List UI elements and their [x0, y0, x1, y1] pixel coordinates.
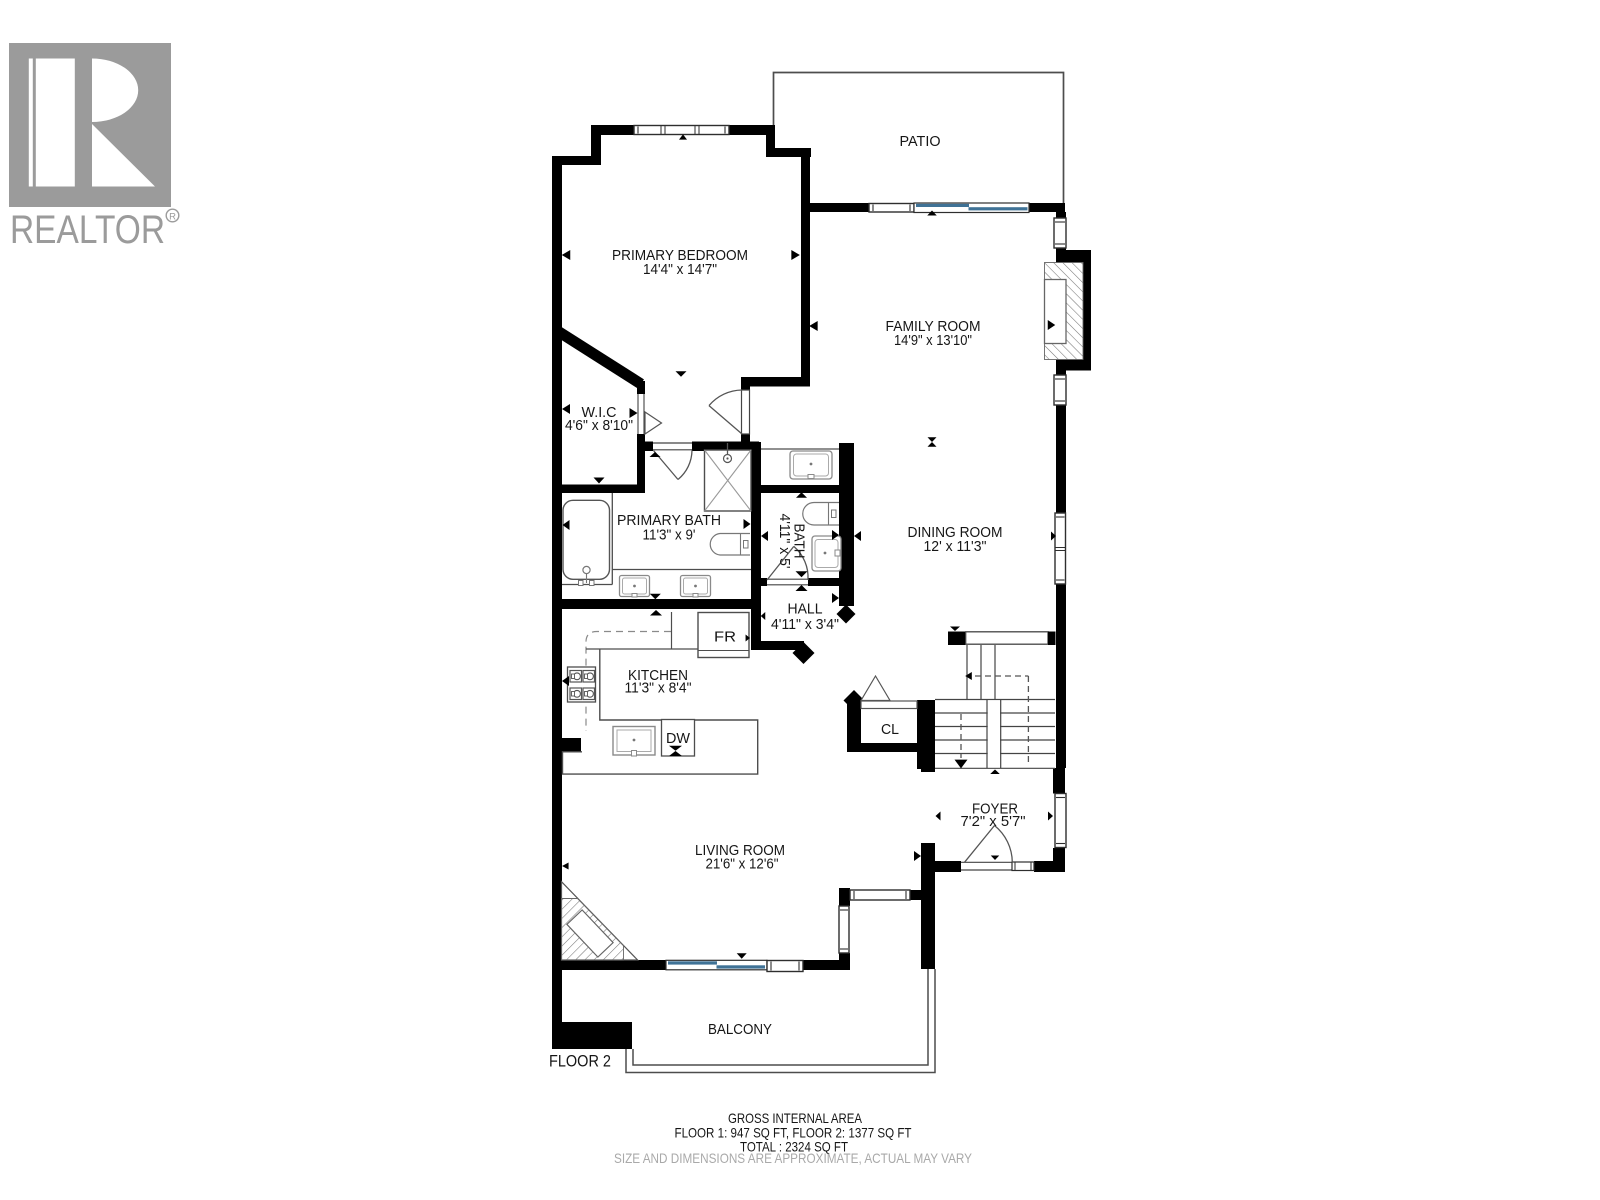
svg-text:14'4" x 14'7": 14'4" x 14'7"	[643, 262, 717, 278]
svg-text:12' x 11'3": 12' x 11'3"	[924, 539, 987, 555]
svg-text:4'11" x 5': 4'11" x 5'	[776, 514, 792, 569]
svg-text:GROSS INTERNAL AREA: GROSS INTERNAL AREA	[728, 1111, 863, 1126]
svg-text:FLOOR 2: FLOOR 2	[549, 1052, 611, 1071]
svg-text:11'3" x 9': 11'3" x 9'	[643, 528, 696, 544]
svg-text:BALCONY: BALCONY	[708, 1022, 772, 1038]
svg-text:11'3" x 8'4": 11'3" x 8'4"	[625, 681, 692, 697]
svg-text:DW: DW	[666, 730, 691, 747]
svg-text:FLOOR 1: 947 SQ FT, FLOOR 2: 1: FLOOR 1: 947 SQ FT, FLOOR 2: 1377 SQ FT	[675, 1126, 912, 1141]
svg-text:14'9" x 13'10": 14'9" x 13'10"	[894, 333, 972, 349]
svg-text:PATIO: PATIO	[900, 134, 941, 150]
svg-text:4'11" x 3'4": 4'11" x 3'4"	[771, 617, 839, 633]
svg-text:7'2" x 5'7": 7'2" x 5'7"	[961, 814, 1026, 830]
svg-text:CL: CL	[881, 722, 899, 738]
svg-text:SIZE AND DIMENSIONS ARE APPROX: SIZE AND DIMENSIONS ARE APPROXIMATE, ACT…	[614, 1151, 972, 1166]
svg-text:R: R	[169, 211, 176, 222]
svg-text:HALL: HALL	[788, 602, 823, 618]
svg-text:4'6" x 8'10": 4'6" x 8'10"	[565, 418, 633, 434]
svg-text:REALTOR: REALTOR	[10, 208, 165, 252]
svg-text:FR: FR	[714, 630, 736, 646]
svg-text:21'6" x 12'6": 21'6" x 12'6"	[706, 857, 779, 873]
